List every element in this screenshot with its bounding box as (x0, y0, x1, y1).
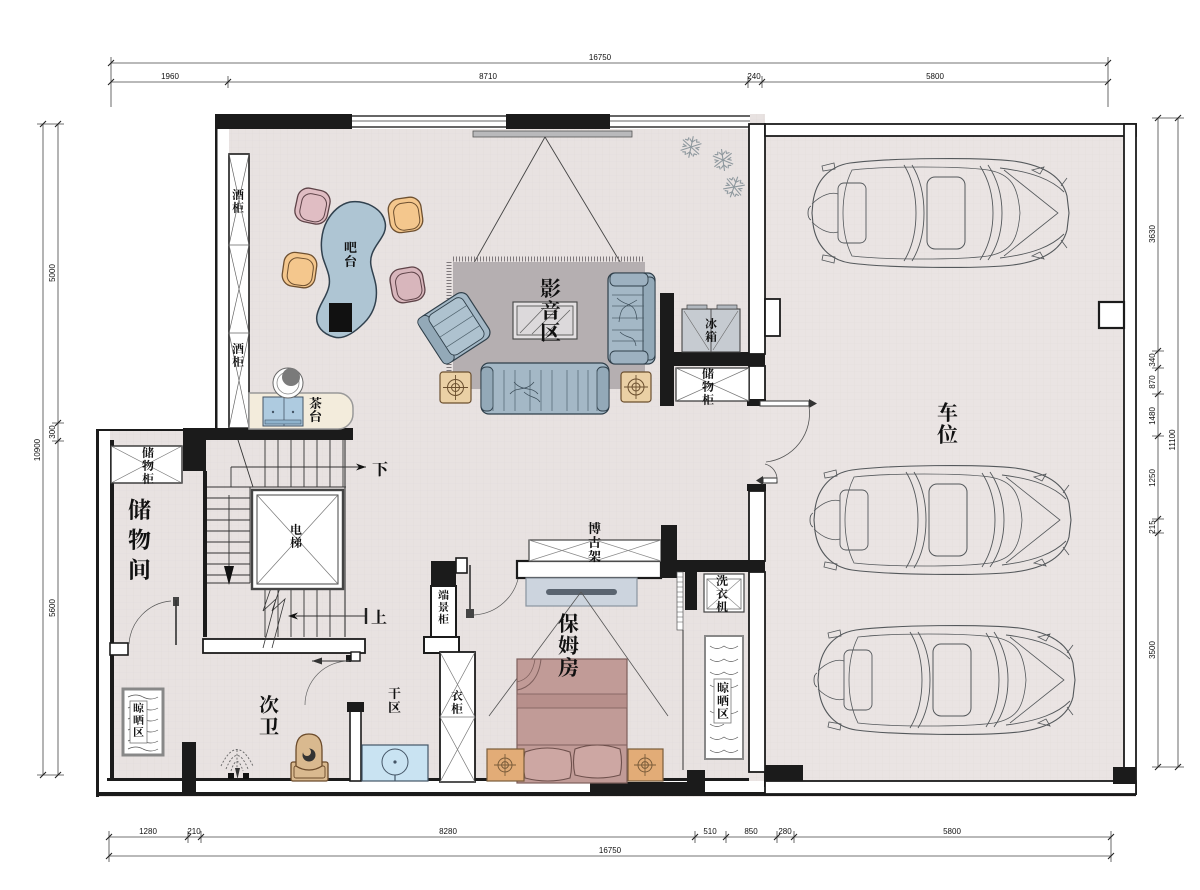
svg-text:8710: 8710 (479, 72, 497, 81)
svg-text:5600: 5600 (48, 599, 57, 617)
svg-text:8280: 8280 (439, 827, 457, 836)
svg-text:850: 850 (744, 827, 758, 836)
svg-text:870: 870 (1148, 375, 1157, 389)
svg-text:11100: 11100 (1168, 429, 1177, 451)
svg-text:5800: 5800 (943, 827, 961, 836)
svg-text:280: 280 (778, 827, 792, 836)
svg-text:240: 240 (747, 72, 761, 81)
svg-text:300: 300 (48, 425, 57, 439)
svg-text:1250: 1250 (1148, 469, 1157, 487)
svg-text:215: 215 (1148, 520, 1157, 534)
svg-text:210: 210 (187, 827, 201, 836)
svg-text:3500: 3500 (1148, 641, 1157, 659)
svg-text:1280: 1280 (139, 827, 157, 836)
svg-text:10900: 10900 (33, 438, 42, 461)
svg-text:1480: 1480 (1148, 407, 1157, 425)
svg-text:5000: 5000 (48, 264, 57, 282)
svg-text:510: 510 (703, 827, 717, 836)
svg-text:5800: 5800 (926, 72, 944, 81)
svg-text:340: 340 (1148, 353, 1157, 367)
svg-text:16750: 16750 (599, 846, 622, 855)
svg-text:1960: 1960 (161, 72, 179, 81)
svg-text:16750: 16750 (589, 53, 612, 62)
svg-text:3630: 3630 (1148, 225, 1157, 243)
